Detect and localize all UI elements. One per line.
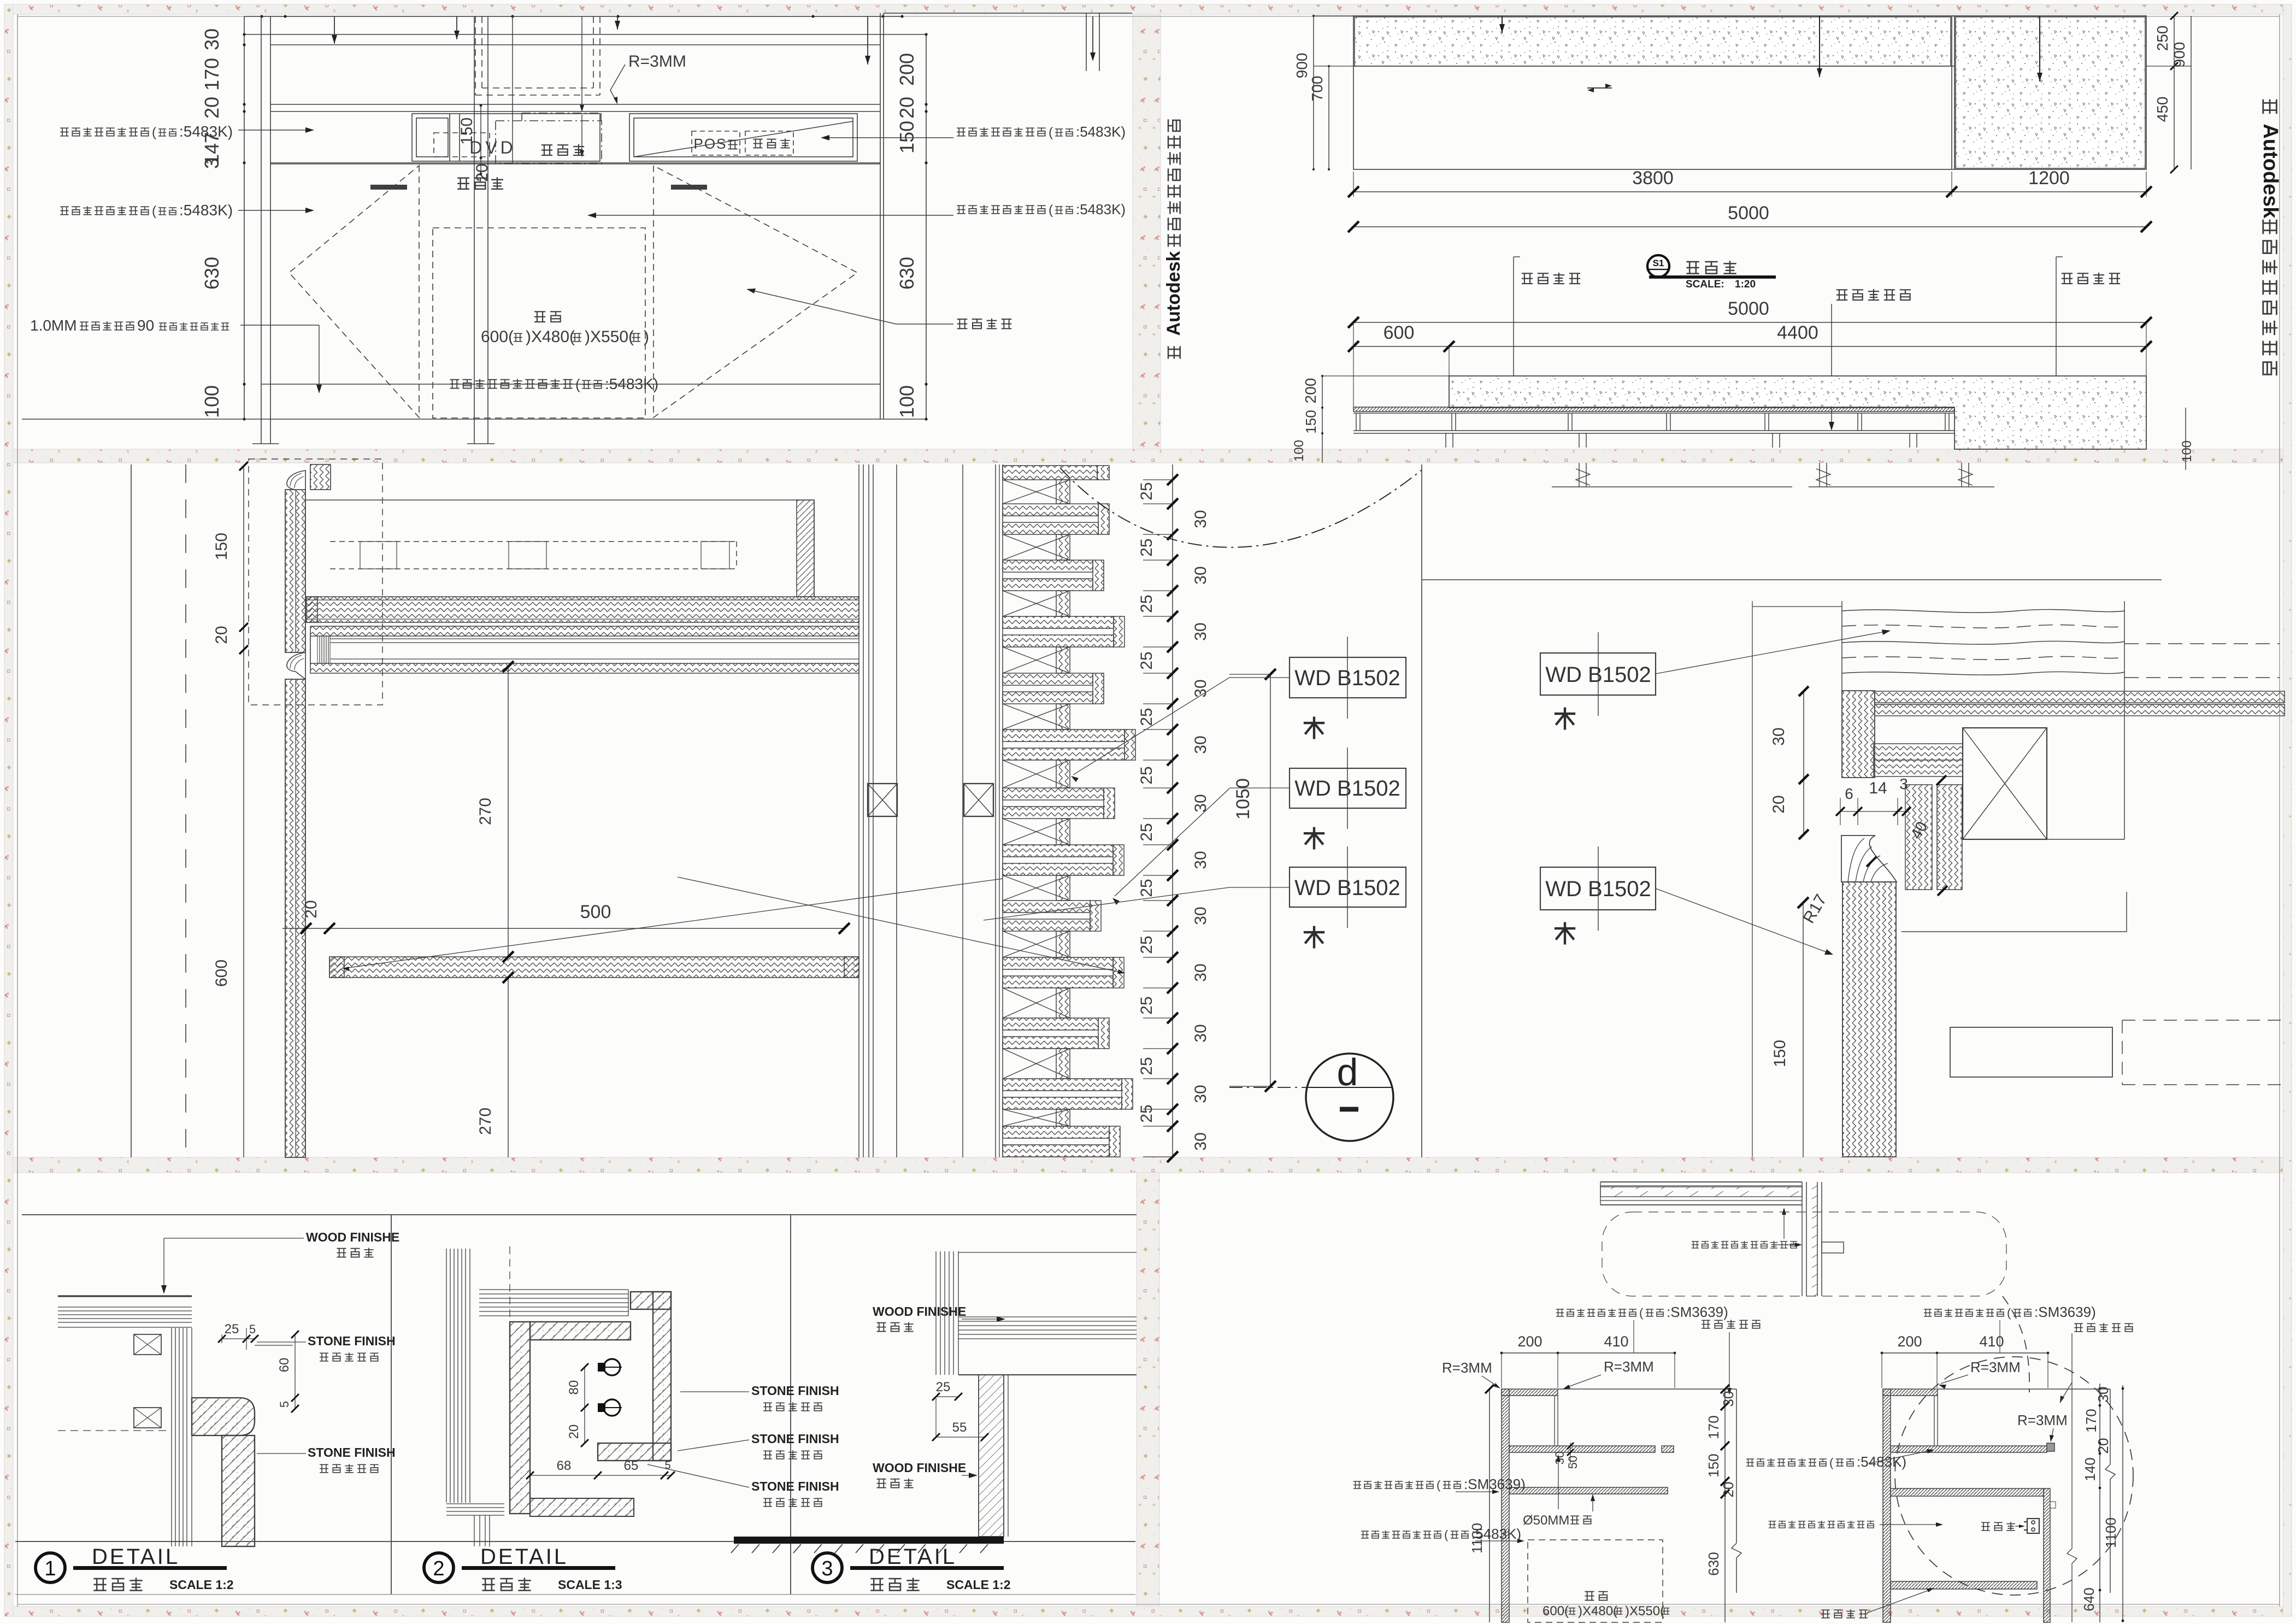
svg-text:30: 30 — [1553, 1451, 1567, 1464]
svg-text:140: 140 — [2082, 1457, 2098, 1481]
svg-text:)X480(: )X480( — [1578, 1604, 1617, 1619]
svg-text:1: 1 — [44, 1557, 56, 1580]
svg-text:270: 270 — [476, 798, 494, 825]
svg-text:20: 20 — [302, 900, 320, 918]
svg-text:STONE FINISH: STONE FINISH — [308, 1334, 396, 1348]
svg-text:3: 3 — [821, 1557, 833, 1580]
svg-text:25: 25 — [1138, 1057, 1156, 1075]
svg-text::5483K): :5483K) — [1857, 1454, 1906, 1470]
svg-text:25: 25 — [1138, 1104, 1156, 1122]
svg-text:WOOD FINISHE: WOOD FINISHE — [873, 1304, 966, 1319]
svg-text:600: 600 — [1384, 322, 1415, 343]
svg-text:SCALE:: SCALE: — [1686, 279, 1724, 290]
svg-text:Autodesk: Autodesk — [2259, 123, 2282, 219]
svg-text:)X480(: )X480( — [526, 328, 575, 346]
svg-text:30: 30 — [1192, 907, 1210, 925]
svg-text:5: 5 — [278, 1401, 291, 1408]
svg-text:25: 25 — [1138, 935, 1156, 954]
svg-text:Autodesk: Autodesk — [1163, 251, 1184, 336]
svg-text:900: 900 — [2171, 42, 2188, 68]
svg-text:200: 200 — [896, 53, 918, 86]
svg-text:68: 68 — [557, 1458, 572, 1473]
svg-text:20: 20 — [567, 1425, 581, 1439]
svg-text:30: 30 — [1192, 679, 1210, 697]
svg-text:20: 20 — [2095, 1438, 2111, 1454]
svg-text:250: 250 — [2154, 26, 2171, 51]
svg-text::SM3639): :SM3639) — [1667, 1304, 1728, 1320]
svg-text:700: 700 — [1309, 76, 1326, 102]
svg-text:14: 14 — [1869, 779, 1887, 797]
svg-text:STONE FINISH: STONE FINISH — [751, 1479, 839, 1493]
svg-text:150: 150 — [1771, 1040, 1789, 1067]
svg-text:30: 30 — [1192, 735, 1210, 754]
svg-text:SCALE 1:2: SCALE 1:2 — [946, 1578, 1011, 1592]
svg-text:20: 20 — [201, 97, 223, 119]
svg-text:50: 50 — [1566, 1456, 1580, 1469]
svg-text:55: 55 — [952, 1420, 967, 1435]
svg-text:)X550(: )X550( — [1625, 1604, 1664, 1619]
svg-text:4400: 4400 — [1777, 322, 1818, 343]
svg-text:(: ( — [152, 125, 156, 140]
svg-text:25: 25 — [1138, 823, 1156, 841]
svg-text:25: 25 — [1138, 879, 1156, 897]
svg-text:80: 80 — [567, 1380, 581, 1395]
svg-text:6: 6 — [1845, 785, 1853, 802]
svg-text:170: 170 — [1705, 1415, 1722, 1439]
svg-text:20: 20 — [473, 163, 491, 181]
svg-text:R=3MM: R=3MM — [2017, 1412, 2068, 1428]
svg-text::5483K): :5483K) — [179, 123, 233, 140]
svg-text:R=3MM: R=3MM — [1970, 1359, 2021, 1375]
svg-text:900: 900 — [1293, 53, 1310, 79]
svg-text:(: ( — [1829, 1456, 1834, 1469]
svg-text:100: 100 — [1292, 440, 1306, 462]
svg-text:5: 5 — [249, 1322, 256, 1336]
svg-text:500: 500 — [580, 902, 611, 922]
svg-text:1.0MM: 1.0MM — [30, 317, 77, 334]
svg-text:630: 630 — [896, 257, 918, 290]
svg-text:25: 25 — [1138, 651, 1156, 669]
svg-text:410: 410 — [1604, 1333, 1628, 1350]
svg-text:630: 630 — [201, 257, 223, 290]
svg-text:600: 600 — [213, 960, 231, 987]
svg-text:100: 100 — [201, 385, 223, 418]
svg-text:(: ( — [1049, 203, 1053, 217]
svg-text:25: 25 — [1138, 708, 1156, 726]
svg-text:STONE FINISH: STONE FINISH — [751, 1384, 839, 1398]
svg-text:SCALE 1:2: SCALE 1:2 — [169, 1578, 234, 1592]
svg-text:150: 150 — [896, 121, 918, 154]
svg-text:640: 640 — [2081, 1587, 2097, 1611]
svg-text:3: 3 — [1899, 775, 1908, 792]
svg-text:25: 25 — [936, 1380, 951, 1394]
svg-text:30: 30 — [1192, 963, 1210, 981]
svg-text:150: 150 — [1303, 410, 1319, 433]
svg-text:150: 150 — [213, 533, 231, 560]
svg-text:630: 630 — [1705, 1552, 1722, 1575]
svg-text:410: 410 — [1979, 1333, 2004, 1350]
svg-text:20: 20 — [896, 97, 918, 119]
svg-text:R=3MM: R=3MM — [1442, 1360, 1492, 1376]
svg-text:S1: S1 — [1653, 258, 1664, 268]
svg-text:200: 200 — [1897, 1333, 1922, 1350]
svg-text:DETAIL: DETAIL — [480, 1545, 568, 1569]
svg-text:30: 30 — [1192, 851, 1210, 869]
svg-text:90: 90 — [137, 317, 154, 334]
svg-text:60: 60 — [277, 1358, 292, 1373]
svg-text:30: 30 — [1192, 622, 1210, 640]
svg-text:25: 25 — [1138, 595, 1156, 613]
svg-text:R=3MM: R=3MM — [1604, 1358, 1654, 1375]
svg-text::5483K): :5483K) — [1471, 1526, 1521, 1542]
svg-text:270: 270 — [476, 1108, 494, 1135]
svg-text:20: 20 — [1770, 795, 1788, 813]
svg-text:WOOD FINISHE: WOOD FINISHE — [306, 1230, 399, 1244]
svg-text:170: 170 — [2083, 1409, 2099, 1432]
svg-text:WOOD FINISHE: WOOD FINISHE — [873, 1461, 966, 1475]
svg-text:65: 65 — [624, 1458, 639, 1473]
svg-text:1200: 1200 — [2028, 168, 2070, 189]
svg-text:3: 3 — [201, 158, 223, 169]
svg-text::5483K): :5483K) — [605, 375, 658, 392]
svg-text:STONE FINISH: STONE FINISH — [751, 1432, 839, 1446]
svg-text:30: 30 — [2095, 1387, 2111, 1403]
svg-text:1050: 1050 — [1233, 778, 1253, 820]
svg-text:170: 170 — [201, 58, 223, 91]
svg-text:100: 100 — [896, 385, 918, 418]
svg-text:1100: 1100 — [2103, 1517, 2119, 1548]
svg-text:(: ( — [575, 376, 580, 392]
svg-text:DETAIL: DETAIL — [92, 1545, 180, 1569]
svg-text:30: 30 — [201, 28, 223, 50]
svg-text:(: ( — [1444, 1528, 1449, 1541]
svg-text:STONE FINISH: STONE FINISH — [308, 1445, 396, 1460]
svg-text:25: 25 — [1138, 996, 1156, 1014]
svg-text:25: 25 — [1138, 538, 1156, 556]
svg-text::SM3639): :SM3639) — [2034, 1304, 2096, 1320]
svg-text:600(: 600( — [1543, 1604, 1569, 1619]
svg-text:(: ( — [152, 204, 156, 219]
svg-text:SCALE 1:3: SCALE 1:3 — [558, 1578, 622, 1592]
svg-text:POS: POS — [694, 136, 727, 152]
svg-text:600(: 600( — [481, 328, 514, 346]
svg-text:5000: 5000 — [1728, 298, 1769, 319]
svg-text:)X550(: )X550( — [585, 328, 634, 346]
svg-text:DVD: DVD — [469, 138, 516, 157]
svg-text:Ø50MM: Ø50MM — [1523, 1513, 1569, 1528]
svg-text:1:20: 1:20 — [1735, 279, 1756, 290]
svg-text:DETAIL: DETAIL — [869, 1545, 957, 1569]
svg-text:5000: 5000 — [1728, 203, 1769, 223]
svg-text:R=3MM: R=3MM — [628, 52, 686, 70]
svg-text:(: ( — [1049, 125, 1053, 140]
svg-text:20: 20 — [213, 626, 231, 644]
svg-text::5483K): :5483K) — [179, 202, 233, 219]
svg-text:450: 450 — [2154, 97, 2171, 122]
svg-text:20: 20 — [1720, 1482, 1736, 1498]
svg-text::5483K): :5483K) — [1076, 201, 1126, 217]
svg-text:150: 150 — [1705, 1454, 1722, 1477]
svg-text:25: 25 — [1138, 482, 1156, 500]
svg-text:30: 30 — [1720, 1391, 1736, 1407]
svg-text:): ) — [644, 328, 649, 346]
svg-text::5483K): :5483K) — [1076, 123, 1126, 140]
svg-text:30: 30 — [1770, 727, 1788, 745]
svg-text:2: 2 — [433, 1557, 444, 1580]
svg-text:100: 100 — [2180, 440, 2194, 462]
svg-text:(: ( — [1639, 1306, 1644, 1320]
svg-text:30: 30 — [1192, 1132, 1210, 1150]
svg-text:200: 200 — [1302, 378, 1319, 404]
svg-text::SM3639): :SM3639) — [1464, 1476, 1526, 1492]
svg-text:(: ( — [1437, 1478, 1441, 1492]
svg-text:30: 30 — [1192, 1085, 1210, 1103]
svg-text:30: 30 — [1192, 1024, 1210, 1042]
svg-text:200: 200 — [1517, 1333, 1542, 1350]
svg-text:(: ( — [2007, 1306, 2011, 1320]
svg-text:25: 25 — [1138, 766, 1156, 784]
svg-text:25: 25 — [225, 1322, 239, 1337]
svg-text:150: 150 — [458, 117, 476, 145]
svg-text:30: 30 — [1192, 566, 1210, 584]
svg-text:3800: 3800 — [1632, 168, 1674, 189]
svg-text:30: 30 — [1192, 510, 1210, 528]
